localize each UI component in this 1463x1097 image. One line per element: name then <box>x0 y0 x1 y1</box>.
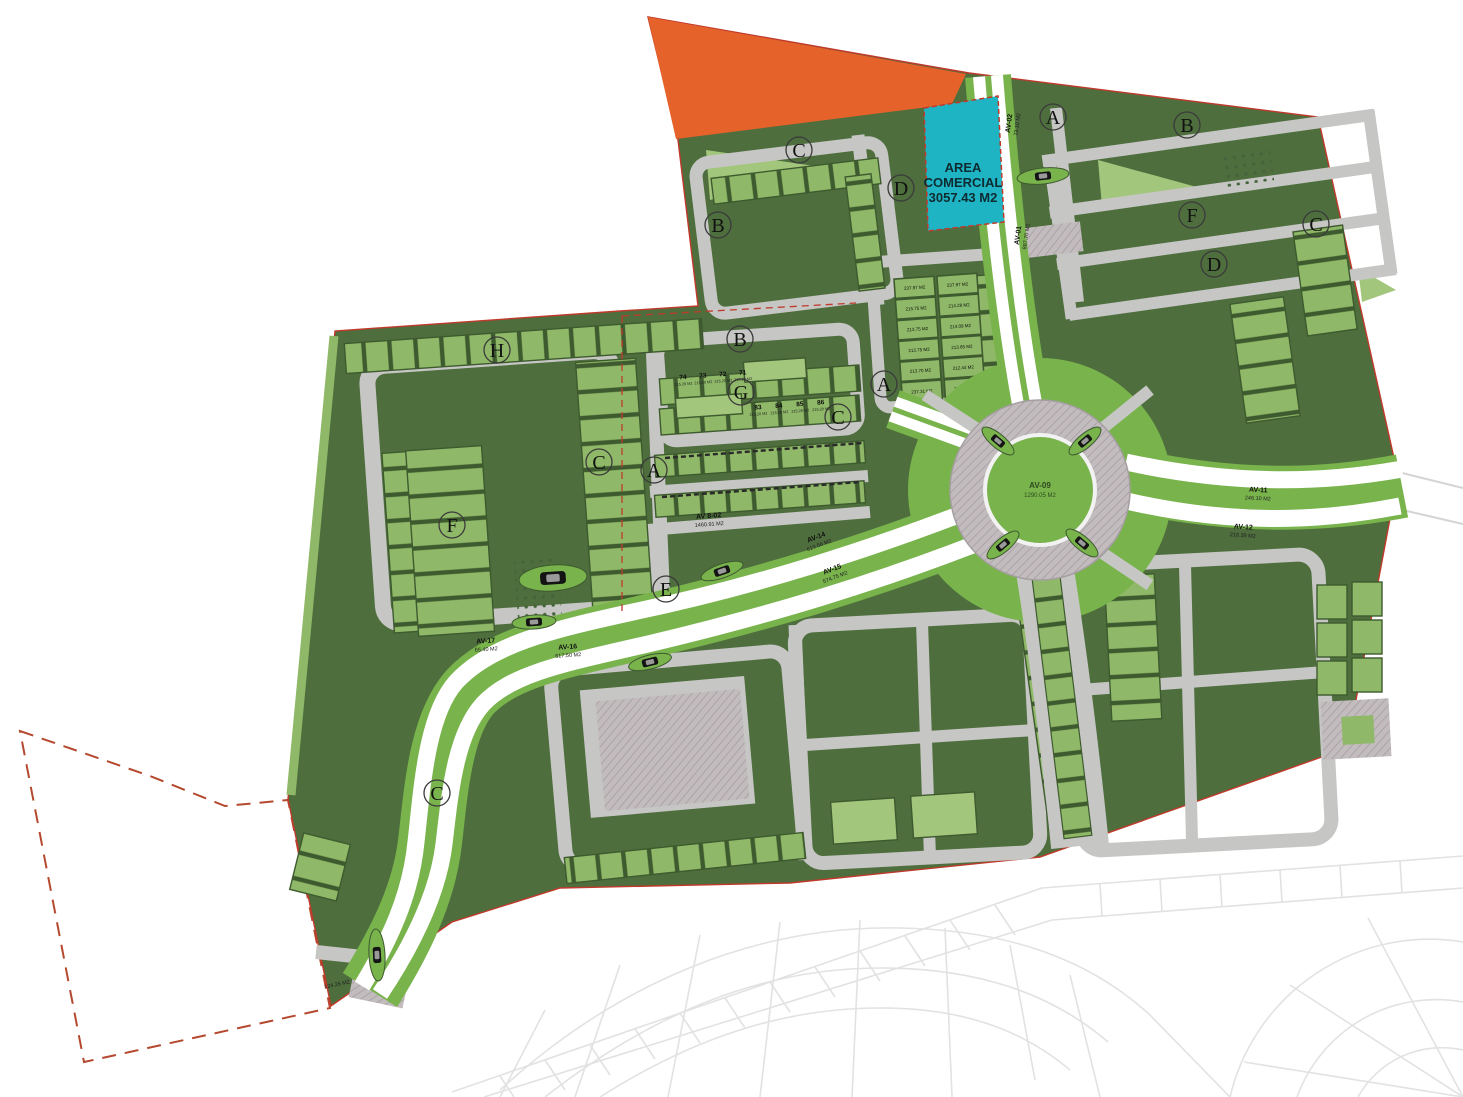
svg-text:C: C <box>592 452 605 474</box>
svg-text:B: B <box>1180 115 1193 137</box>
car-icon <box>540 571 566 586</box>
svg-text:A: A <box>647 460 662 482</box>
svg-text:85: 85 <box>796 401 804 409</box>
svg-text:D: D <box>894 178 908 200</box>
svg-text:AV-12: AV-12 <box>1234 523 1253 531</box>
site-plan-svg: 237.97 M2 237.97 M2 215.75 M2 214.28 M2 … <box>0 0 1463 1097</box>
svg-text:COMERCIAL: COMERCIAL <box>924 175 1003 190</box>
svg-text:72: 72 <box>719 371 727 379</box>
roundabout-area: 1290.05 M2 <box>1024 493 1056 499</box>
site-plan-page: 237.97 M2 237.97 M2 215.75 M2 214.28 M2 … <box>0 0 1463 1097</box>
car-icon <box>373 947 382 963</box>
svg-text:D: D <box>1207 254 1221 276</box>
svg-text:86: 86 <box>817 399 825 407</box>
property-boundary-dashed <box>20 731 330 1062</box>
svg-text:E: E <box>660 579 672 601</box>
svg-text:71: 71 <box>739 369 747 377</box>
svg-text:C: C <box>792 140 805 162</box>
svg-text:A: A <box>1046 107 1061 129</box>
svg-text:74: 74 <box>679 374 687 382</box>
svg-text:F: F <box>446 515 457 537</box>
svg-text:F: F <box>1186 205 1197 227</box>
svg-text:84: 84 <box>775 402 783 410</box>
svg-text:A: A <box>877 374 892 396</box>
roundabout-name: AV-09 <box>1029 481 1051 490</box>
svg-text:G: G <box>734 382 748 404</box>
car-icon <box>1035 171 1052 181</box>
svg-text:C: C <box>1309 214 1322 236</box>
svg-text:C: C <box>831 407 844 429</box>
car-icon <box>526 617 543 626</box>
svg-text:3057.43 M2: 3057.43 M2 <box>929 190 998 205</box>
svg-text:C: C <box>430 783 443 805</box>
svg-text:83: 83 <box>754 404 762 412</box>
svg-text:B: B <box>733 329 746 351</box>
svg-text:AREA: AREA <box>945 160 982 175</box>
svg-text:AV-11: AV-11 <box>1249 487 1268 495</box>
svg-text:B: B <box>711 215 724 237</box>
svg-text:AV-16: AV-16 <box>558 643 577 651</box>
roundabout: AV-09 1290.05 M2 <box>950 400 1130 580</box>
svg-text:H: H <box>490 340 504 362</box>
svg-text:73: 73 <box>699 372 707 380</box>
svg-text:AV-17: AV-17 <box>476 637 495 645</box>
